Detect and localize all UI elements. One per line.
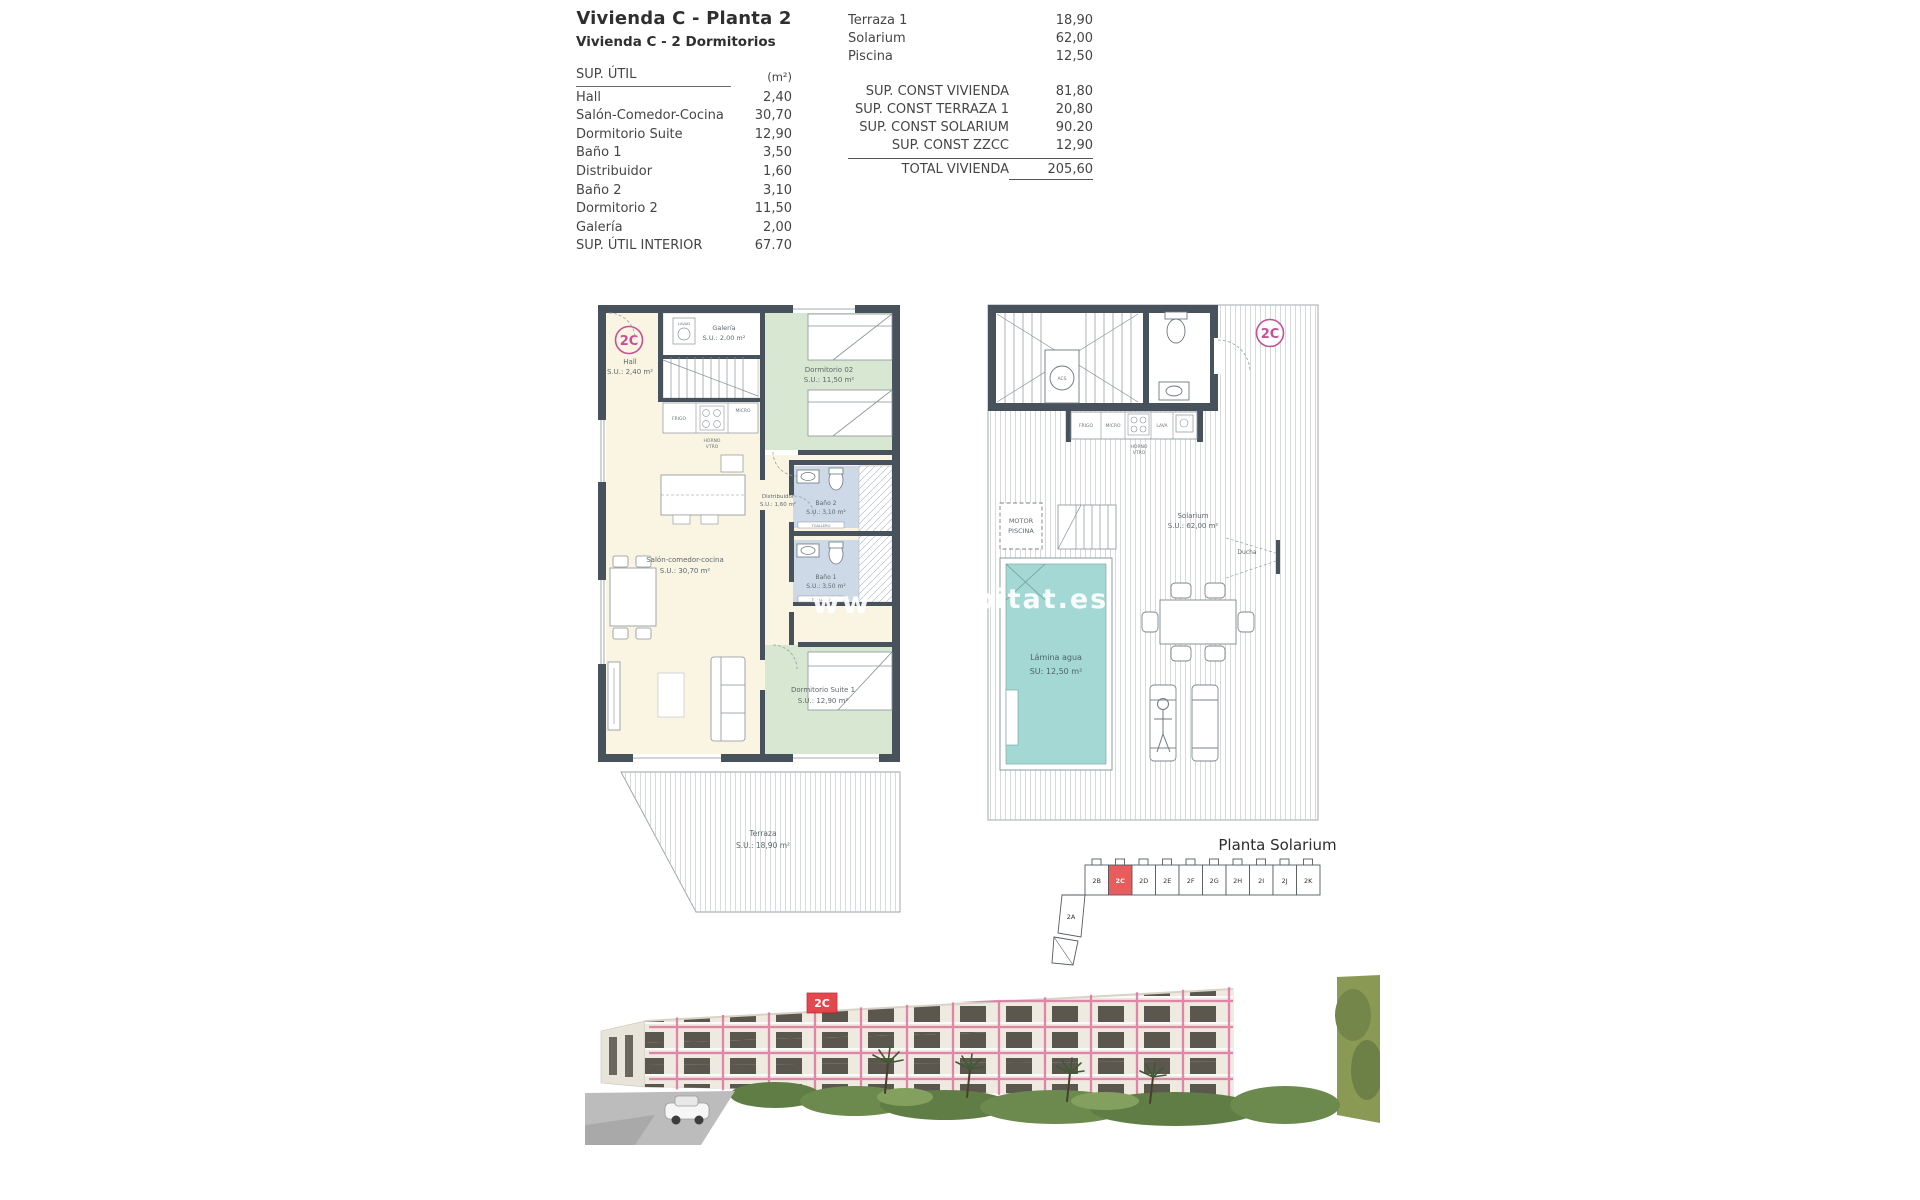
row-label: Hall: [576, 89, 763, 108]
distribuidor-area: S.U.: 1,60 m²: [760, 501, 796, 508]
galeria-area: S.U.: 2,00 m²: [703, 334, 746, 342]
dormitorio2-area: S.U.: 11,50 m²: [804, 376, 855, 384]
row-label: Solarium: [848, 30, 1009, 48]
row-label: SUP. CONST SOLARIUM: [848, 119, 1009, 137]
row-value: 62,00: [1009, 30, 1093, 48]
total-label: TOTAL VIVIENDA: [848, 161, 1009, 180]
key-plan-lower-wing: 2A: [1052, 895, 1085, 965]
micro-label: MICRO: [735, 408, 750, 414]
key-unit-2b: 2B: [1092, 877, 1101, 885]
upper-stair: [1058, 505, 1116, 549]
suite-area: S.U.: 12,90 m²: [798, 697, 849, 705]
row-label: Dormitorio Suite: [576, 126, 755, 145]
row-label: Terraza 1: [848, 12, 1009, 30]
table-row: SUP. CONST SOLARIUM90.20: [848, 119, 1093, 137]
solarium-label: Solarium: [1177, 512, 1208, 520]
row-label: SUP. CONST TERRAZA 1: [848, 101, 1009, 119]
summary-exterior-block: Terraza 118,90 Solarium62,00 Piscina12,5…: [848, 12, 1093, 66]
key-unit-2f: 2F: [1187, 877, 1195, 885]
page-title: Vivienda C - Planta 2: [576, 8, 792, 29]
lava-label: LAVA: [1156, 423, 1168, 429]
row-value: 1,60: [763, 163, 792, 182]
horno-label-2: VTRO: [706, 444, 719, 450]
key-unit-2c: 2C: [1116, 877, 1126, 885]
floor-plan-planta2: Terraza S.U.: 18,90 m²: [593, 300, 905, 925]
unit-outline-overlay: [649, 987, 1233, 1099]
bano1-area: S.U.: 3,50 m²: [806, 583, 846, 590]
horno-label-1: HORNO: [1131, 444, 1148, 450]
row-value: 30,70: [755, 107, 792, 126]
row-value: 18,90: [1009, 12, 1093, 30]
horno-label-1: HORNO: [704, 438, 721, 444]
row-value: 81,80: [1009, 83, 1093, 101]
row-label: Dormitorio 2: [576, 200, 755, 219]
pool-label-2: SU: 12,50 m²: [1030, 667, 1083, 676]
row-value: 12,90: [1009, 137, 1093, 155]
row-value: 2,00: [763, 219, 792, 238]
galeria-label: Galería: [712, 324, 735, 332]
sofa: [711, 657, 745, 741]
ducha-label: Ducha: [1237, 549, 1257, 556]
road: [585, 1091, 735, 1145]
motor-piscina-box: MOTOR PISCINA: [1000, 503, 1042, 549]
row-value: 3,50: [763, 144, 792, 163]
row-value: 12,90: [755, 126, 792, 145]
key-plan: 2B 2C 2D 2E 2F 2G 2H 2I 2J 2K 2A: [1050, 853, 1330, 971]
lavad-label: LAVAD: [678, 321, 691, 326]
basin-fixture: [1159, 382, 1189, 400]
dormitorio2-label: Dormitorio 02: [805, 366, 853, 374]
row-label: SUP. CONST ZZCC: [848, 137, 1009, 155]
table-row: Piscina12,50: [848, 48, 1093, 66]
hall-label: Hall: [623, 358, 636, 366]
salon-label: Salón-comedor-cocina: [646, 556, 724, 564]
frigo-label: FRIGO: [1079, 423, 1094, 429]
table-row: SUP. CONST ZZCC12,90: [848, 137, 1093, 155]
key-unit-2k: 2K: [1304, 877, 1313, 885]
row-label: Piscina: [848, 48, 1009, 66]
table-row: Hall2,40: [576, 89, 792, 108]
motor-label-2: PISCINA: [1008, 527, 1034, 535]
solarium-area: S.U.: 62,00 m²: [1168, 522, 1219, 530]
key-plan-title: Planta Solarium: [1205, 836, 1350, 854]
solarium-plan: ACS FRIGO MICRO LAVA HORNO VTRO 2C MOT: [983, 300, 1323, 825]
suite-label: Dormitorio Suite 1: [791, 686, 855, 694]
bano1-label: Baño 1: [816, 574, 837, 581]
salon-area: S.U.: 30,70 m²: [660, 567, 711, 575]
pool: Lámina agua SU: 12,50 m²: [1000, 558, 1112, 770]
row-value: 20,80: [1009, 101, 1093, 119]
key-unit-2h: 2H: [1233, 877, 1242, 885]
hall-area: S.U.: 2,40 m²: [607, 368, 653, 376]
key-unit-2a: 2A: [1067, 913, 1076, 921]
terraza-area: Terraza S.U.: 18,90 m²: [621, 772, 900, 912]
row-value: 2,40: [763, 89, 792, 108]
sup-util-header-label: SUP. ÚTIL: [576, 66, 731, 87]
table-row: Salón-Comedor-Cocina30,70: [576, 107, 792, 126]
row-label: Distribuidor: [576, 163, 763, 182]
frigo-label: FRIGO: [672, 416, 687, 422]
table-row: Dormitorio Suite12,90: [576, 126, 792, 145]
row-value: 67.70: [755, 237, 792, 256]
row-label: SUP. CONST VIVIENDA: [848, 83, 1009, 101]
table-row: Dormitorio 211,50: [576, 200, 792, 219]
micro-label: MICRO: [1105, 423, 1120, 429]
key-unit-2e: 2E: [1163, 877, 1171, 885]
summary-total-row: TOTAL VIVIENDA 205,60: [848, 158, 1093, 180]
table-row: Baño 13,50: [576, 144, 792, 163]
row-label: Salón-Comedor-Cocina: [576, 107, 755, 126]
stair-block: ACS: [992, 309, 1250, 407]
trees-band: [1335, 975, 1380, 1123]
bano2-label: Baño 2: [816, 500, 837, 507]
row-label: Baño 1: [576, 144, 763, 163]
row-value: 90.20: [1009, 119, 1093, 137]
unit-badge-circle: 2C: [1257, 320, 1284, 347]
distribuidor-label: Distribuidor: [762, 494, 795, 500]
bano2-area: S.U.: 3,10 m²: [806, 509, 846, 516]
table-row: SUP. CONST TERRAZA 120,80: [848, 101, 1093, 119]
row-label: SUP. ÚTIL INTERIOR: [576, 237, 755, 256]
sup-util-table-header: SUP. ÚTIL (m²): [576, 66, 792, 87]
building-render: 2C: [585, 975, 1380, 1145]
terraza-label: Terraza: [748, 829, 776, 838]
key-unit-2i: 2I: [1258, 877, 1264, 885]
key-unit-2d: 2D: [1139, 877, 1148, 885]
render-unit-badge-label: 2C: [814, 997, 830, 1010]
table-row: Galería2,00: [576, 219, 792, 238]
row-value: 3,10: [763, 182, 792, 201]
row-value: 12,50: [1009, 48, 1093, 66]
acs-label: ACS: [1058, 376, 1067, 382]
toallero-label-1: TOALLERO: [810, 598, 830, 602]
page-subtitle: Vivienda C - 2 Dormitorios: [576, 34, 776, 50]
horno-label-2: VTRO: [1133, 450, 1146, 456]
toallero-label-2: TOALLERO: [810, 524, 830, 528]
unit-badge-label: 2C: [620, 334, 639, 349]
summary-const-block: SUP. CONST VIVIENDA81,80 SUP. CONST TERR…: [848, 83, 1093, 155]
table-row: SUP. CONST VIVIENDA81,80: [848, 83, 1093, 101]
summary-table: Terraza 118,90 Solarium62,00 Piscina12,5…: [848, 12, 1093, 180]
table-row: Terraza 118,90: [848, 12, 1093, 30]
key-unit-2j: 2J: [1282, 877, 1288, 885]
table-total-row: SUP. ÚTIL INTERIOR67.70: [576, 237, 792, 256]
row-label: Galería: [576, 219, 763, 238]
sup-util-table: SUP. ÚTIL (m²) Hall2,40 Salón-Comedor-Co…: [576, 66, 792, 256]
sup-util-header-unit: (m²): [767, 68, 792, 87]
terraza-area-label: S.U.: 18,90 m²: [736, 841, 790, 850]
key-unit-2g: 2G: [1210, 877, 1219, 885]
row-label: Baño 2: [576, 182, 763, 201]
row-value: 11,50: [755, 200, 792, 219]
washer-fixture: LAVAD: [673, 318, 695, 344]
highlighted-unit-badge: 2C: [807, 993, 837, 1013]
table-row: Solarium62,00: [848, 30, 1093, 48]
pool-label-1: Lámina agua: [1030, 653, 1082, 662]
total-value: 205,60: [1009, 161, 1093, 180]
unit-badge-label: 2C: [1261, 327, 1280, 342]
motor-label-1: MOTOR: [1009, 517, 1034, 525]
table-row: Distribuidor1,60: [576, 163, 792, 182]
table-row: Baño 23,10: [576, 182, 792, 201]
